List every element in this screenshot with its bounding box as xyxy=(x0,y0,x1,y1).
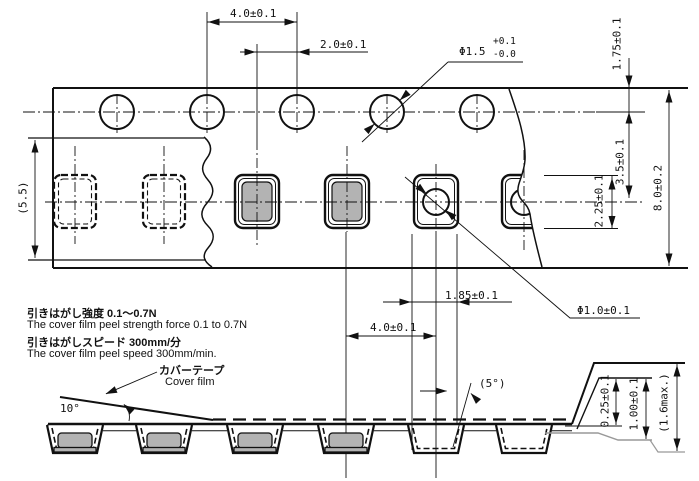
cover-film-leader xyxy=(106,372,157,394)
dim-pocket-hole-dia: Φ1.0±0.1 xyxy=(577,304,630,317)
cover-film-edges xyxy=(28,138,206,260)
note-peel-speed-en: The cover film peel speed 300mm/min. xyxy=(27,348,217,360)
section-pockets xyxy=(47,425,552,453)
dim-total-thickness: (1.6max.) xyxy=(658,373,671,433)
dim-hole-to-pocket: 2.0±0.1 xyxy=(320,38,366,51)
sprocket-hole-tol-minus: -0.0 xyxy=(493,49,516,60)
dim-edge-to-hole: 1.75±0.1 xyxy=(611,18,624,71)
dim-pocket-height: 2.25±0.1 xyxy=(593,175,606,228)
dim-pocket-pitch: 4.0±0.1 xyxy=(370,321,416,334)
note-peel-strength-en: The cover film peel strength force 0.1 t… xyxy=(27,319,247,331)
dim-pocket-width: 1.85±0.1 xyxy=(445,289,498,302)
top-view xyxy=(23,12,688,478)
dim-tape-thickness: 0.25±0.1 xyxy=(599,375,612,428)
cover-film-peeled xyxy=(60,397,568,421)
sprocket-hole-tol-plus: +0.1 xyxy=(493,36,516,47)
tape-body-section xyxy=(48,424,572,431)
dim-tape-width: 8.0±0.2 xyxy=(652,165,665,211)
wall-angle-label: (5°) xyxy=(479,377,506,390)
dim-hole-to-pocket-center: 3.5±0.1 xyxy=(614,139,627,185)
carrier-tape-drawing: 4.0±0.1 2.0±0.1 Φ1.5 +0.1 -0.0 1.75±0.1 … xyxy=(0,0,699,481)
wall-angle-indicator xyxy=(420,383,478,447)
dim-sprocket-pitch: 4.0±0.1 xyxy=(230,7,276,20)
drawing-canvas xyxy=(0,0,699,481)
dim-cover-film-width: (5.5) xyxy=(17,181,30,214)
dim-sprocket-hole-dia: Φ1.5 xyxy=(459,45,486,58)
dim-pocket-depth: 1.00±0.1 xyxy=(628,378,641,431)
cover-film-label-en: Cover film xyxy=(165,376,215,388)
peel-angle-label: 10° xyxy=(60,402,80,415)
side-view xyxy=(47,363,685,453)
